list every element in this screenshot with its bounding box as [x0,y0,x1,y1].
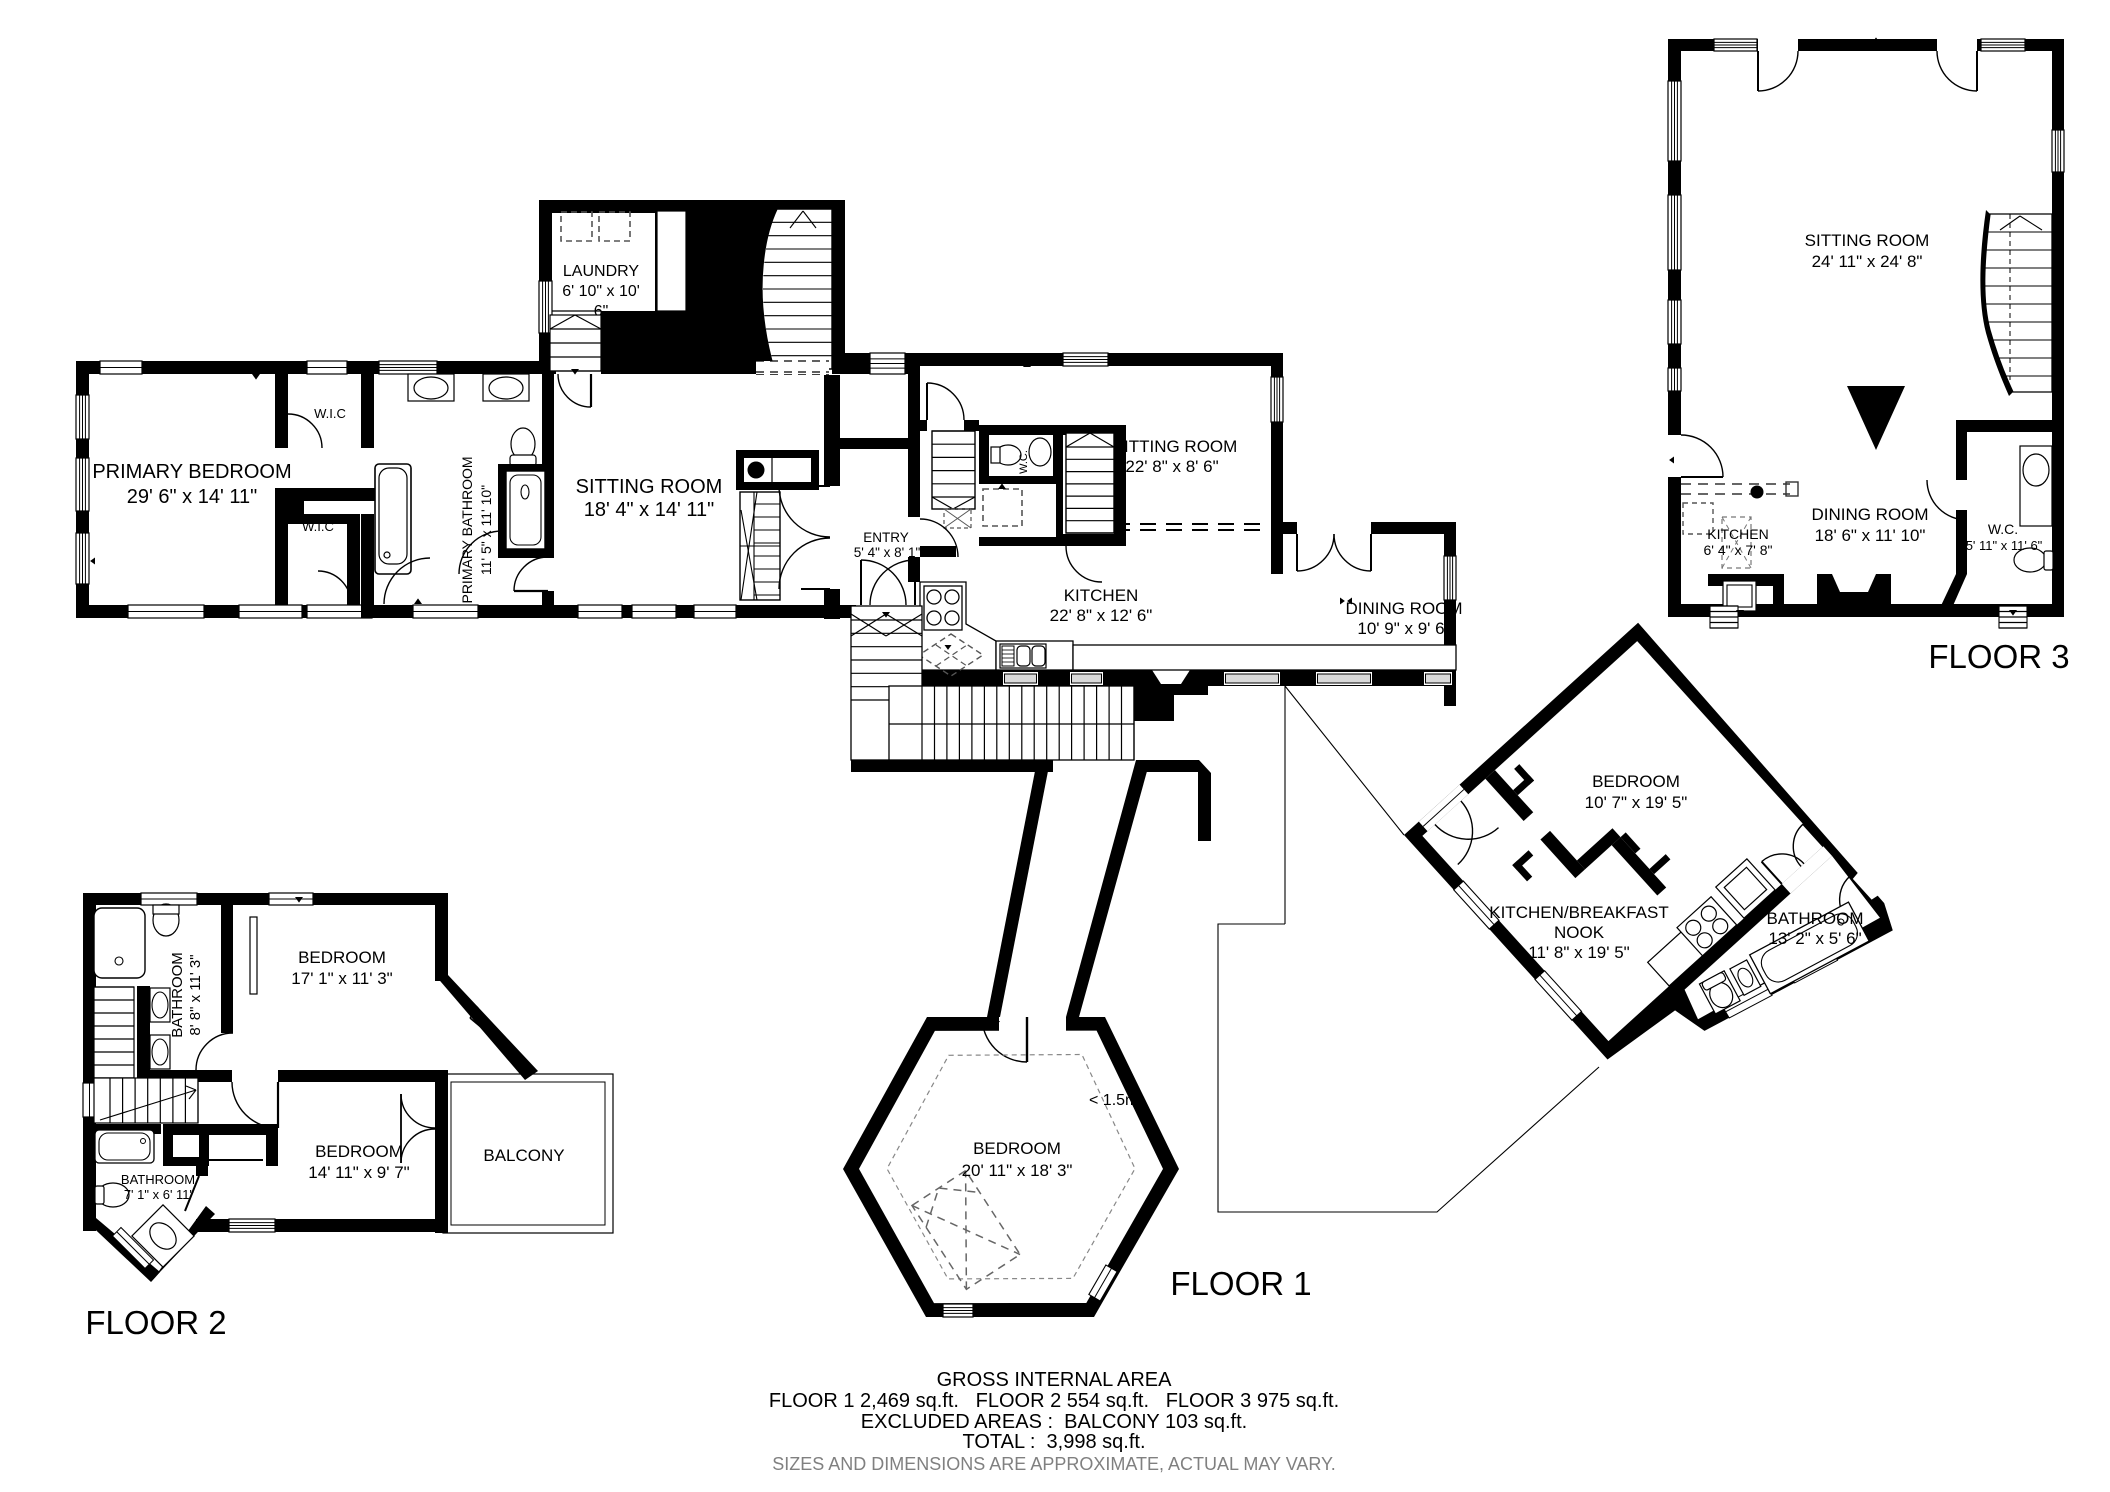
svg-text:EXCLUDED AREAS : BALCONY 103: EXCLUDED AREAS : BALCONY 103 sq.ft. [861,1411,1247,1433]
svg-text:LAUNDRY: LAUNDRY [563,263,640,280]
svg-text:ENTRY: ENTRY [863,530,909,545]
svg-text:DINING ROOM: DINING ROOM [1811,505,1928,524]
svg-text:6' 4" x 7' 8": 6' 4" x 7' 8" [1704,542,1773,558]
svg-text:5' 11" x 11' 6": 5' 11" x 11' 6" [1966,538,2043,553]
svg-text:11' 5" x 11' 10": 11' 5" x 11' 10" [478,485,494,575]
svg-text:FLOOR 2: FLOOR 2 [85,1304,226,1341]
svg-text:13' 2" x 5' 6": 13' 2" x 5' 6" [1768,929,1861,948]
svg-text:PRIMARY BEDROOM: PRIMARY BEDROOM [92,461,291,483]
svg-text:FLOOR 3: FLOOR 3 [1928,638,2069,675]
svg-text:KITCHEN: KITCHEN [1707,526,1768,542]
svg-text:BATHROOM: BATHROOM [121,1172,195,1187]
svg-text:7' 1" x 6' 11": 7' 1" x 6' 11" [124,1187,195,1202]
svg-text:10' 7" x 19' 5": 10' 7" x 19' 5" [1585,793,1688,812]
svg-text:29' 6" x 14' 11": 29' 6" x 14' 11" [127,486,257,508]
svg-text:FLOOR 1 2,469 sq.ft. FLOOR 2: FLOOR 1 2,469 sq.ft. FLOOR 2 554 sq.ft. … [769,1390,1339,1412]
svg-text:BEDROOM: BEDROOM [298,948,386,967]
svg-text:8' 8" x 11' 3": 8' 8" x 11' 3" [187,954,204,1035]
svg-text:20' 11" x 18' 3": 20' 11" x 18' 3" [962,1161,1073,1180]
svg-text:KITCHEN: KITCHEN [1064,586,1139,605]
svg-text:GROSS INTERNAL AREA: GROSS INTERNAL AREA [937,1369,1173,1391]
svg-text:W.C.: W.C. [1018,450,1030,474]
svg-text:SITTING ROOM: SITTING ROOM [1113,437,1238,456]
svg-text:14' 11" x 9' 7": 14' 11" x 9' 7" [308,1163,409,1182]
svg-text:W.I.C: W.I.C [302,519,334,534]
svg-text:SIZES AND DIMENSIONS ARE APPRO: SIZES AND DIMENSIONS ARE APPROXIMATE, AC… [772,1454,1336,1474]
svg-text:TOTAL : 3,998 sq.ft.: TOTAL : 3,998 sq.ft. [962,1431,1145,1453]
svg-text:W.C.: W.C. [1988,521,2018,537]
svg-text:< 1.5m: < 1.5m [1089,1092,1138,1109]
svg-text:22' 8" x 8' 6": 22' 8" x 8' 6" [1125,457,1218,476]
svg-text:10' 9" x 9' 6": 10' 9" x 9' 6" [1357,619,1450,638]
svg-text:SITTING ROOM: SITTING ROOM [1805,231,1930,250]
svg-text:BATHROOM: BATHROOM [1767,909,1864,928]
svg-text:BEDROOM: BEDROOM [973,1139,1061,1158]
svg-text:18' 4" x 14' 11": 18' 4" x 14' 11" [584,499,714,521]
svg-text:PRIMARY BATHROOM: PRIMARY BATHROOM [459,456,475,603]
svg-text:BALCONY: BALCONY [483,1146,564,1165]
svg-text:BEDROOM: BEDROOM [315,1142,403,1161]
svg-text:KITCHEN/BREAKFAST: KITCHEN/BREAKFAST [1489,903,1668,922]
svg-text:18' 6" x 11' 10": 18' 6" x 11' 10" [1815,526,1926,545]
svg-text:24' 11" x 24' 8": 24' 11" x 24' 8" [1812,252,1923,271]
svg-text:SITTING ROOM: SITTING ROOM [576,476,723,498]
svg-text:BEDROOM: BEDROOM [1592,772,1680,791]
svg-text:22' 8" x 12' 6": 22' 8" x 12' 6" [1050,606,1153,625]
svg-text:DINING ROOM: DINING ROOM [1345,599,1462,618]
svg-text:11' 8" x 19' 5": 11' 8" x 19' 5" [1528,943,1629,962]
svg-text:6' 10" x 10': 6' 10" x 10' [562,283,640,300]
svg-text:NOOK: NOOK [1554,923,1605,942]
svg-text:FLOOR 1: FLOOR 1 [1170,1265,1311,1302]
svg-text:BATHROOM: BATHROOM [169,952,186,1038]
svg-text:W.I.C: W.I.C [314,406,346,421]
svg-text:17' 1" x 11' 3": 17' 1" x 11' 3" [291,969,392,988]
